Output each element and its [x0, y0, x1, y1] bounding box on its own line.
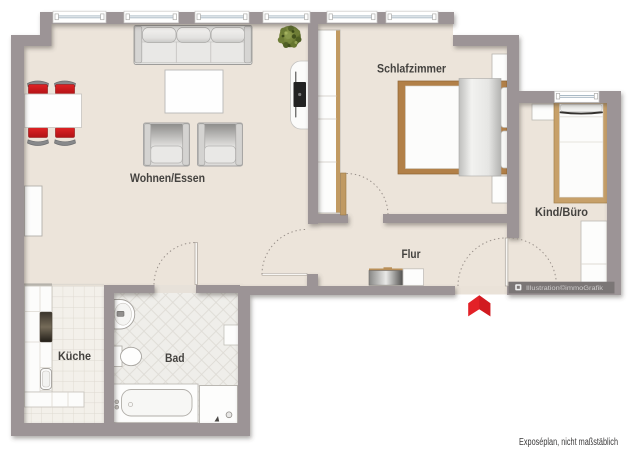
svg-text:Illustration©immoGrafik: Illustration©immoGrafik — [526, 285, 604, 292]
svg-text:Wohnen/Essen: Wohnen/Essen — [130, 171, 205, 185]
svg-text:Kind/Büro: Kind/Büro — [535, 205, 588, 219]
svg-text:Exposéplan, nicht maßstäblich: Exposéplan, nicht maßstäblich — [519, 437, 618, 448]
svg-text:Bad: Bad — [165, 351, 185, 365]
svg-text:Schlafzimmer: Schlafzimmer — [377, 62, 446, 76]
svg-text:Küche: Küche — [58, 349, 91, 363]
svg-text:Flur: Flur — [402, 247, 421, 261]
